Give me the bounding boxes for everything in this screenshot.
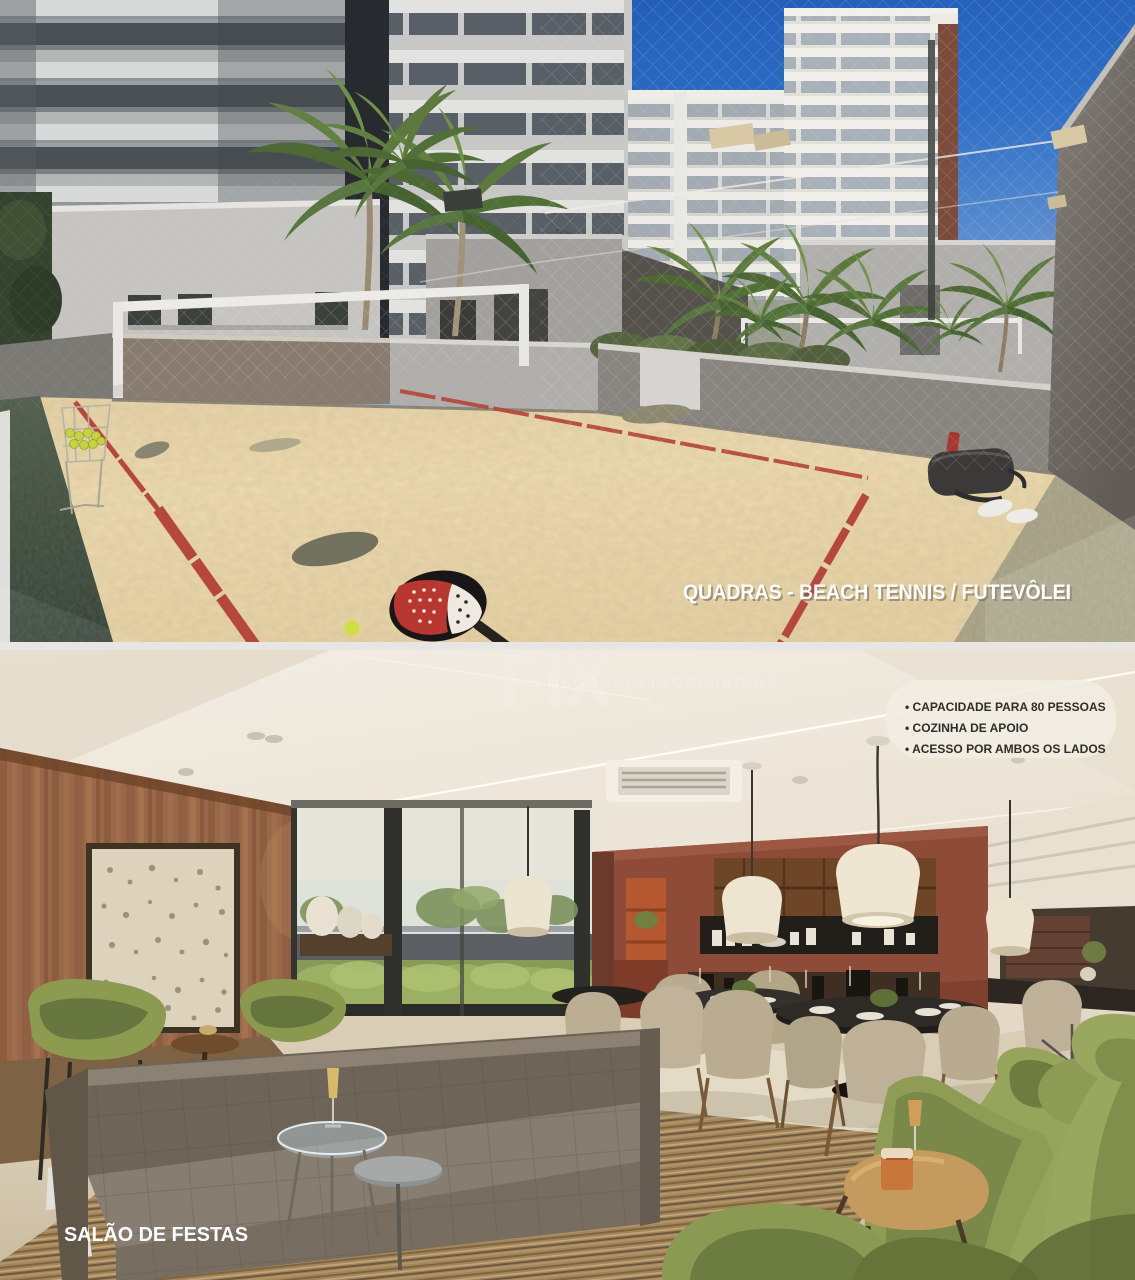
svg-text:SALÃO DE FESTAS: SALÃO DE FESTAS	[64, 1223, 248, 1246]
svg-text:• COZINHA DE APOIO: • COZINHA DE APOIO	[905, 721, 1028, 735]
svg-text:• CAPACIDADE PARA 80 PESSOAS: • CAPACIDADE PARA 80 PESSOAS	[905, 700, 1106, 714]
svg-text:• ACESSO POR AMBOS OS LADOS: • ACESSO POR AMBOS OS LADOS	[905, 742, 1106, 756]
svg-text:CRECI 77777: CRECI 77777	[638, 701, 717, 713]
svg-text:NEGÓCIOS IMOBILIÁRIOS: NEGÓCIOS IMOBILIÁRIOS	[548, 674, 779, 692]
